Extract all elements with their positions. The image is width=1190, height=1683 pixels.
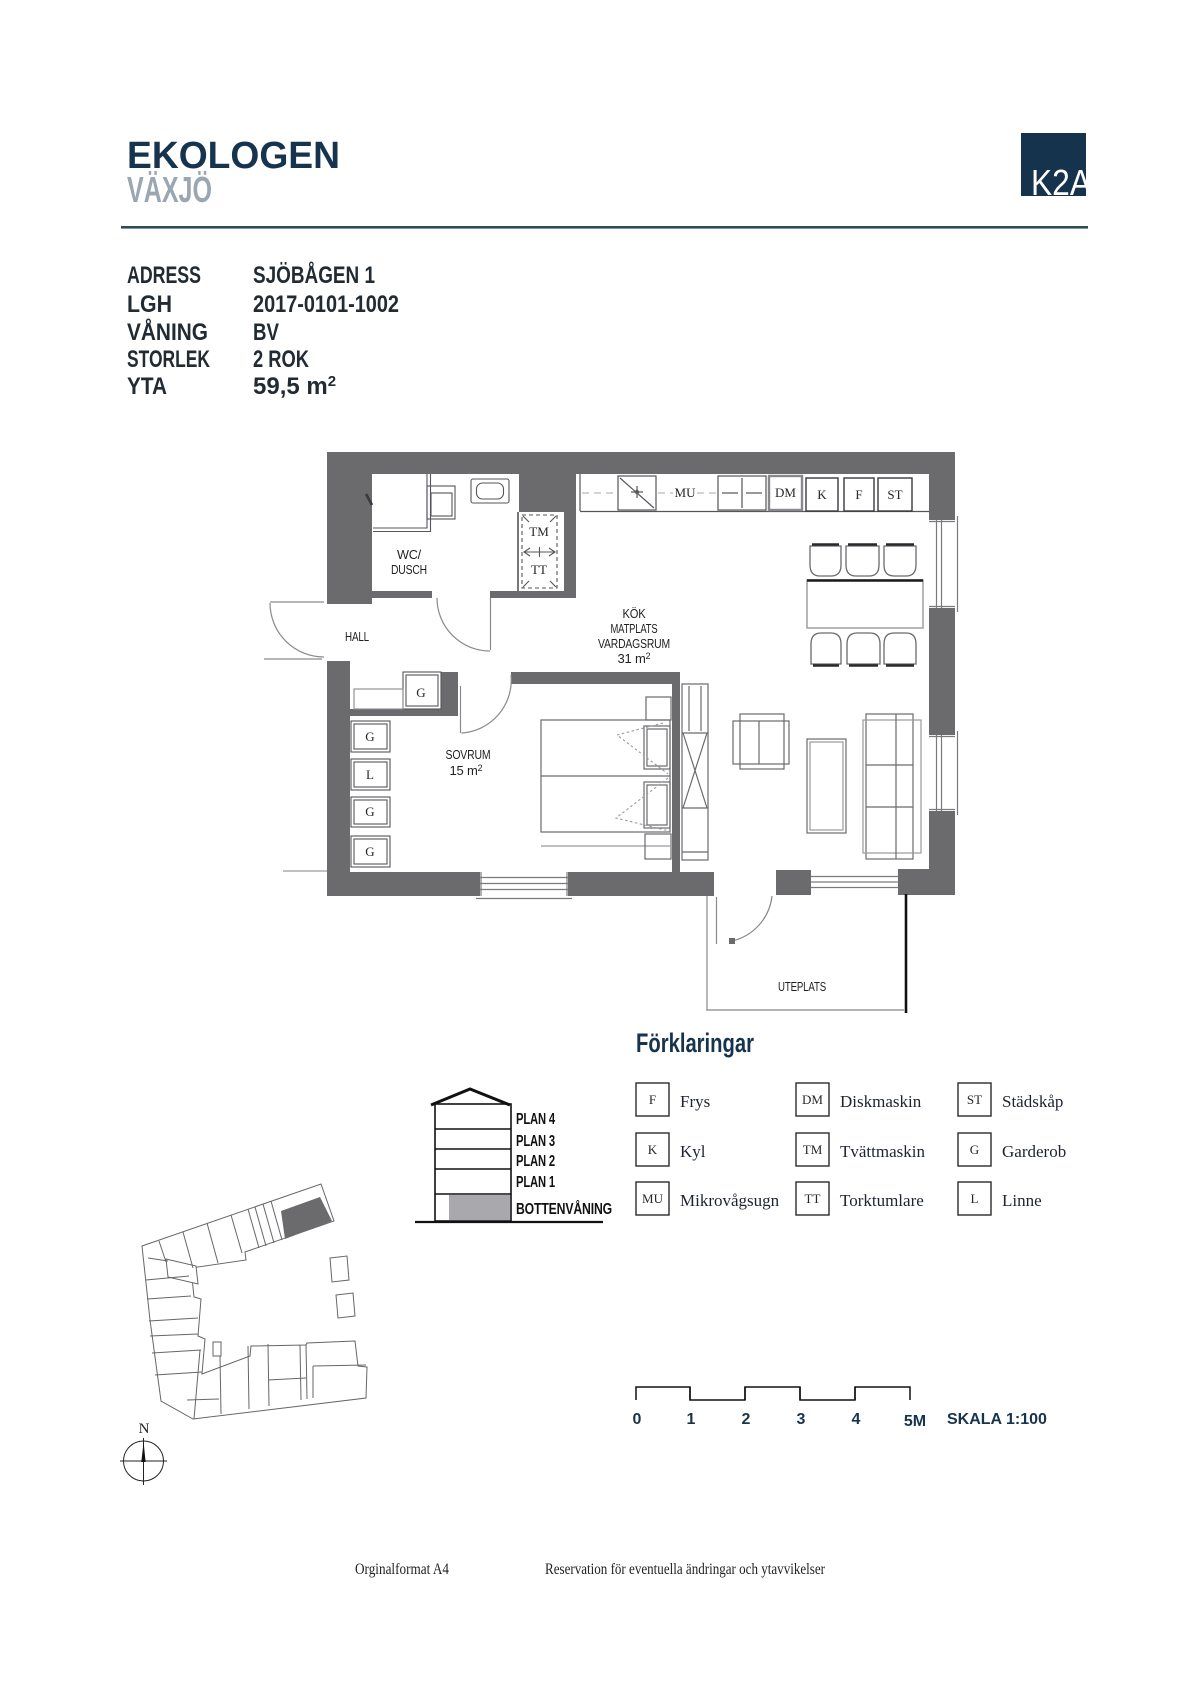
svg-text:SKALA 1:100: SKALA 1:100: [947, 1411, 1047, 1428]
svg-text:STORLEK: STORLEK: [127, 346, 210, 373]
svg-text:3: 3: [797, 1411, 806, 1428]
svg-text:G: G: [970, 1142, 979, 1157]
svg-text:K: K: [648, 1142, 658, 1157]
svg-text:UTEPLATS: UTEPLATS: [778, 979, 826, 994]
svg-text:G: G: [365, 729, 374, 744]
svg-text:DM: DM: [802, 1092, 823, 1107]
svg-text:L: L: [366, 767, 374, 782]
svg-text:2 ROK: 2 ROK: [253, 346, 310, 373]
svg-text:DM: DM: [775, 485, 796, 500]
svg-text:TM: TM: [529, 524, 549, 539]
svg-text:N: N: [139, 1421, 150, 1437]
svg-text:ADRESS: ADRESS: [127, 262, 201, 289]
svg-text:WC/: WC/: [397, 547, 422, 562]
svg-text:2017-0101-1002: 2017-0101-1002: [253, 291, 399, 318]
svg-text:K: K: [817, 487, 827, 502]
svg-text:2: 2: [742, 1411, 751, 1428]
svg-text:LGH: LGH: [127, 291, 172, 318]
svg-text:Mikrovågsugn: Mikrovågsugn: [680, 1191, 780, 1210]
svg-text:HALL: HALL: [345, 629, 369, 644]
svg-text:Torktumlare: Torktumlare: [840, 1191, 924, 1210]
svg-text:VARDAGSRUM: VARDAGSRUM: [598, 636, 670, 651]
svg-text:Diskmaskin: Diskmaskin: [840, 1092, 922, 1111]
svg-text:PLAN 1: PLAN 1: [516, 1174, 555, 1191]
svg-text:TT: TT: [805, 1191, 821, 1206]
svg-text:Garderob: Garderob: [1002, 1142, 1066, 1161]
svg-text:Orginalformat A4: Orginalformat A4: [355, 1561, 449, 1578]
svg-text:Städskåp: Städskåp: [1002, 1092, 1063, 1111]
svg-text:G: G: [365, 804, 374, 819]
svg-text:1: 1: [687, 1411, 696, 1428]
svg-text:DUSCH: DUSCH: [391, 562, 427, 577]
svg-text:PLAN 4: PLAN 4: [516, 1111, 555, 1128]
svg-text:L: L: [971, 1191, 979, 1206]
svg-text:59,5 m2: 59,5 m2: [253, 373, 336, 400]
svg-text:0: 0: [633, 1411, 642, 1428]
svg-text:G: G: [365, 844, 374, 859]
svg-text:Tvättmaskin: Tvättmaskin: [840, 1142, 925, 1161]
svg-text:KÖK: KÖK: [623, 606, 646, 621]
svg-text:G: G: [416, 685, 425, 700]
svg-text:Linne: Linne: [1002, 1191, 1042, 1210]
svg-text:ST: ST: [967, 1092, 982, 1107]
svg-text:PLAN 2: PLAN 2: [516, 1153, 555, 1170]
svg-text:4: 4: [852, 1411, 861, 1428]
svg-text:YTA: YTA: [127, 373, 167, 400]
svg-text:TM: TM: [803, 1142, 823, 1157]
svg-text:F: F: [649, 1092, 656, 1107]
svg-text:MU: MU: [675, 485, 697, 500]
svg-text:VÄXJÖ: VÄXJÖ: [127, 169, 212, 210]
svg-text:MATPLATS: MATPLATS: [611, 621, 658, 636]
svg-text:5M: 5M: [904, 1413, 926, 1430]
svg-text:Reservation för eventuella änd: Reservation för eventuella ändringar och…: [545, 1561, 826, 1578]
svg-text:Kyl: Kyl: [680, 1142, 706, 1161]
svg-text:SJÖBÅGEN 1: SJÖBÅGEN 1: [253, 261, 375, 289]
svg-text:PLAN 3: PLAN 3: [516, 1133, 555, 1150]
svg-text:TT: TT: [531, 562, 547, 577]
svg-text:MU: MU: [642, 1191, 664, 1206]
svg-text:ST: ST: [887, 487, 902, 502]
svg-text:BOTTENVÅNING: BOTTENVÅNING: [516, 1199, 612, 1218]
svg-text:Förklaringar: Förklaringar: [636, 1028, 754, 1058]
svg-text:SOVRUM: SOVRUM: [446, 747, 491, 762]
svg-text:BV: BV: [253, 319, 279, 346]
svg-text:Frys: Frys: [680, 1092, 710, 1111]
svg-text:F: F: [855, 487, 862, 502]
svg-text:VÅNING: VÅNING: [127, 318, 208, 346]
